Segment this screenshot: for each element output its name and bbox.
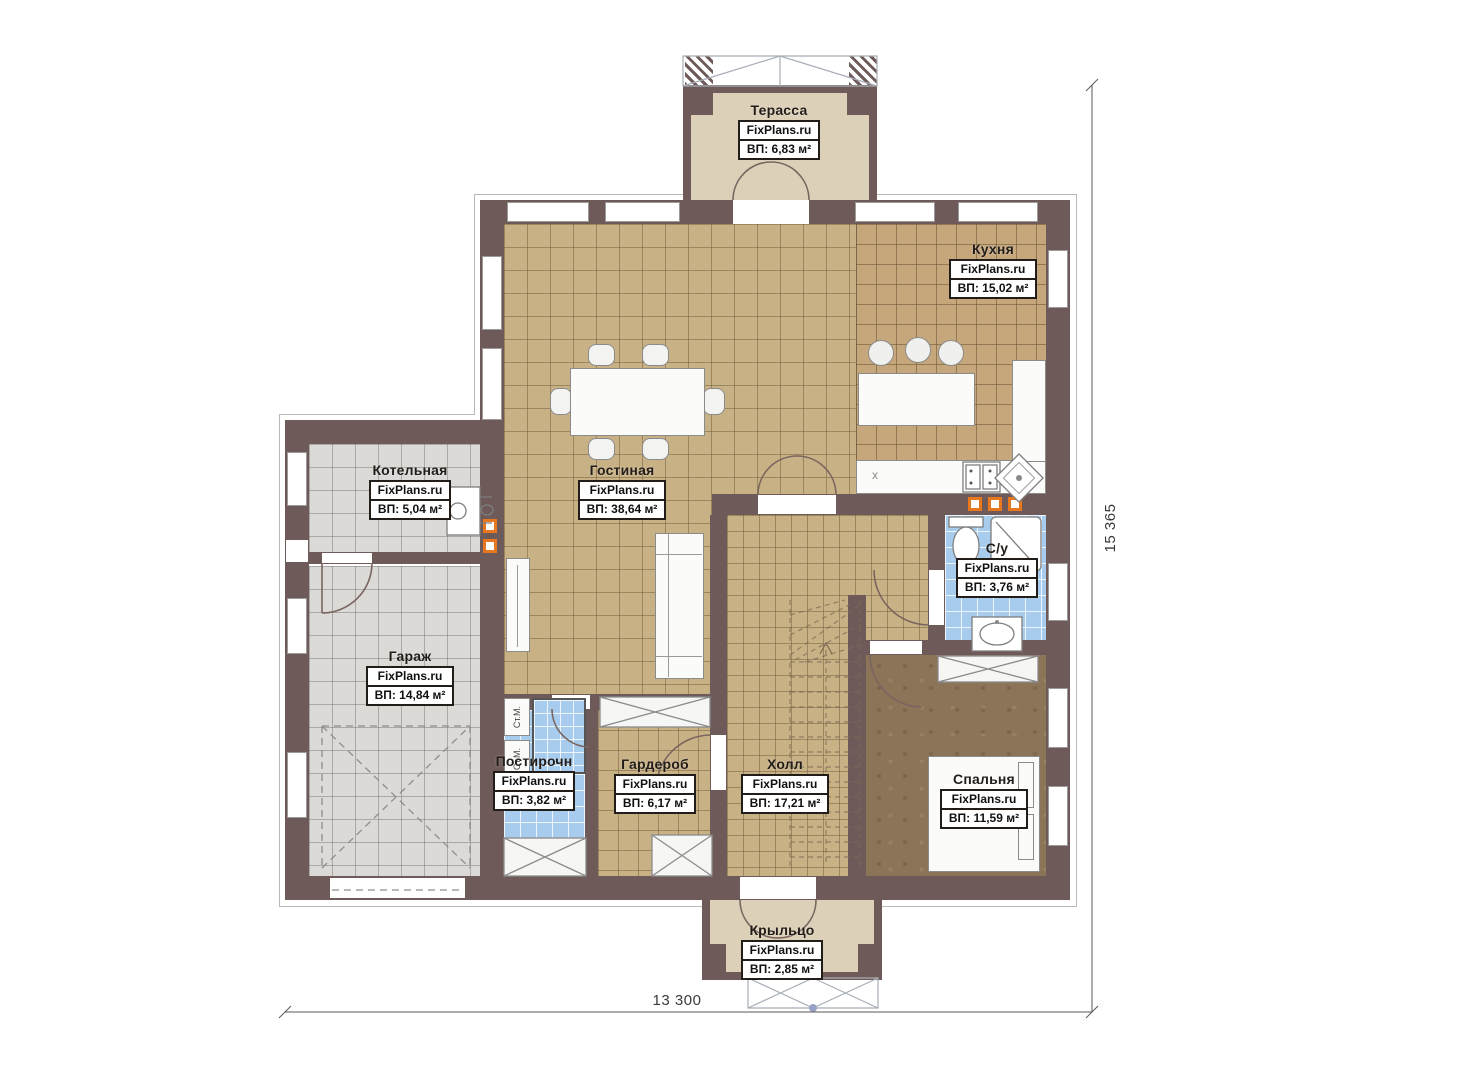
window xyxy=(507,202,589,222)
room-name: Крыльцо xyxy=(749,922,814,938)
room-area: ВП: 15,02 м² xyxy=(951,278,1036,297)
room-label-garage: Гараж FixPlans.ruВП: 14,84 м² xyxy=(345,648,475,706)
room-name: Спальня xyxy=(953,771,1015,787)
chair xyxy=(642,344,669,366)
living-hall-door-opening xyxy=(758,495,836,514)
bar-stool xyxy=(905,337,931,363)
room-area: ВП: 11,59 м² xyxy=(942,808,1026,827)
room-area: ВП: 38,64 м² xyxy=(580,499,665,518)
window xyxy=(1048,688,1068,748)
annex-wall-top xyxy=(285,420,504,444)
chair xyxy=(703,388,725,415)
room-label-hall: Холл FixPlans.ruВП: 17,21 м² xyxy=(720,756,850,814)
washer-label: Ст.М. xyxy=(505,697,529,737)
radiator xyxy=(506,558,530,652)
socket xyxy=(483,539,497,553)
garage-floor xyxy=(309,566,480,876)
room-name: Холл xyxy=(767,756,803,772)
room-name: Постирочн xyxy=(496,753,573,769)
kitchen-island xyxy=(858,373,975,426)
terrace-door-opening xyxy=(733,200,809,224)
window xyxy=(1048,786,1068,846)
window xyxy=(605,202,680,222)
brand-watermark: FixPlans.ru xyxy=(371,482,450,499)
floor-plan: х Ст.М. Ст.М. xyxy=(0,0,1473,1080)
brand-watermark: FixPlans.ru xyxy=(743,776,828,793)
room-area: ВП: 3,76 м² xyxy=(958,577,1037,596)
socket xyxy=(483,519,497,533)
annex-door-opening xyxy=(286,540,308,562)
room-label-kitchen: Кухня FixPlans.ruВП: 15,02 м² xyxy=(928,241,1058,299)
dimension-bottom: 13 300 xyxy=(627,992,727,1009)
window xyxy=(482,348,502,420)
room-name: С/у xyxy=(986,540,1008,556)
window xyxy=(287,452,307,506)
chair xyxy=(550,388,572,415)
room-name: Гостиная xyxy=(590,462,655,478)
room-name: Котельная xyxy=(372,462,447,478)
sofa xyxy=(655,533,704,679)
window xyxy=(958,202,1038,222)
bar-stool xyxy=(938,340,964,366)
window xyxy=(287,598,307,654)
brand-watermark: FixPlans.ru xyxy=(616,776,695,793)
socket xyxy=(968,497,982,511)
boiler-door-opening xyxy=(322,553,372,563)
chair xyxy=(588,344,615,366)
room-name: Гараж xyxy=(389,648,432,664)
room-area: ВП: 3,82 м² xyxy=(495,790,574,809)
dimension-right: 15 365 xyxy=(1102,478,1119,578)
partition-stairs xyxy=(848,595,866,876)
chair xyxy=(642,438,669,460)
room-label-bathroom: С/у FixPlans.ruВП: 3,76 м² xyxy=(932,540,1062,598)
socket xyxy=(988,497,1002,511)
brand-watermark: FixPlans.ru xyxy=(580,482,665,499)
bedroom-door-opening xyxy=(870,641,922,654)
room-label-boiler: Котельная FixPlans.ruВП: 5,04 м² xyxy=(345,462,475,520)
chair xyxy=(588,438,615,460)
room-name: Кухня xyxy=(972,241,1014,257)
room-name: Гардероб xyxy=(621,756,689,772)
kitchen-counter-right xyxy=(1012,360,1046,462)
room-area: ВП: 6,17 м² xyxy=(616,793,695,812)
terrace-post xyxy=(683,85,713,115)
brand-watermark: FixPlans.ru xyxy=(368,668,453,685)
room-label-terrace: Терасса FixPlans.ruВП: 6,83 м² xyxy=(714,102,844,160)
terrace-post xyxy=(847,85,877,115)
room-label-living: Гостиная FixPlans.ruВП: 38,64 м² xyxy=(557,462,687,520)
room-label-wardrobe: Гардероб FixPlans.ruВП: 6,17 м² xyxy=(590,756,720,814)
garage-door-opening xyxy=(330,878,465,898)
brand-watermark: FixPlans.ru xyxy=(740,122,819,139)
brand-watermark: FixPlans.ru xyxy=(942,791,1026,808)
bar-stool xyxy=(868,340,894,366)
brand-watermark: FixPlans.ru xyxy=(743,942,822,959)
room-area: ВП: 6,83 м² xyxy=(740,139,819,158)
dining-table xyxy=(570,368,705,436)
room-label-porch: Крыльцо FixPlans.ruВП: 2,85 м² xyxy=(717,922,847,980)
room-label-laundry: Постирочн FixPlans.ruВП: 3,82 м² xyxy=(469,753,599,811)
room-area: ВП: 2,85 м² xyxy=(743,959,822,978)
window xyxy=(287,752,307,818)
room-label-bedroom: Спальня FixPlans.ruВП: 11,59 м² xyxy=(919,771,1049,829)
porch-steps xyxy=(748,978,878,1012)
appliance-mark: х xyxy=(856,468,894,482)
room-name: Терасса xyxy=(751,102,808,118)
porch-door-opening xyxy=(740,877,816,899)
room-area: ВП: 14,84 м² xyxy=(368,685,453,704)
window xyxy=(482,256,502,330)
socket xyxy=(1008,497,1022,511)
partition-hall-vertical xyxy=(710,515,727,876)
window xyxy=(855,202,935,222)
brand-watermark: FixPlans.ru xyxy=(958,560,1037,577)
room-area: ВП: 5,04 м² xyxy=(371,499,450,518)
brand-watermark: FixPlans.ru xyxy=(495,773,574,790)
brand-watermark: FixPlans.ru xyxy=(951,261,1036,278)
room-area: ВП: 17,21 м² xyxy=(743,793,828,812)
